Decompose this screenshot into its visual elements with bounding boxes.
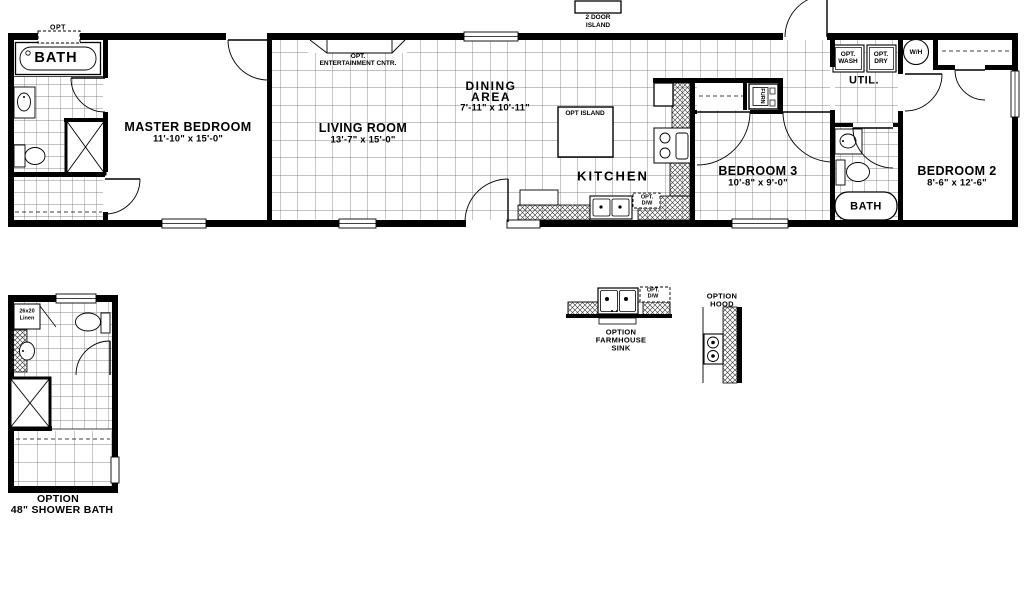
option-hood-drawing: [703, 307, 742, 383]
opt-window-label: OPT: [50, 25, 66, 32]
opt-dry-label-line2: DRY: [874, 59, 887, 66]
option-shower-bath-title-line2: 48" SHOWER BATH: [11, 505, 114, 516]
bedroom2-dims: 8'-6" x 12'-6": [927, 178, 987, 188]
utility-label: UTIL.: [849, 76, 879, 87]
hall-closets: [697, 83, 778, 110]
master-bath-label: BATH: [34, 51, 77, 66]
dining-area-name-line2: AREA: [471, 91, 511, 103]
bedroom2-name: BEDROOM 2: [917, 165, 996, 178]
floorplan-page: OPT BATH MASTER BEDROOM 11'-10" x 15'-0"…: [0, 0, 1024, 600]
island-ext-label-line1: 2 DOOR: [586, 15, 611, 22]
master-bedroom-dims: 11'-10" x 15'-0": [153, 134, 223, 144]
farmhouse-opt-dw-line2: D/W: [648, 294, 659, 300]
linen-label-line2: Linen: [20, 316, 35, 322]
living-room-name: LIVING ROOM: [319, 122, 407, 135]
kitchen-opt-dw-line2: D/W: [642, 201, 653, 207]
bedroom3-dims: 10'-8" x 9'-0": [728, 178, 788, 188]
living-room-dims: 13'-7" x 15'-0": [330, 135, 395, 145]
option-farmhouse-title-line3: SINK: [611, 344, 630, 352]
opt-island-label: OPT ISLAND: [565, 111, 604, 118]
kitchen-name: KITCHEN: [577, 170, 649, 183]
option-shower-bath-title-line1: OPTION: [37, 494, 79, 505]
island-ext-label-line2: ISLAND: [586, 23, 610, 30]
ent-cntr-label-line2: ENTERTAINMENT CNTR.: [320, 61, 397, 68]
furnace-label: FURN: [758, 88, 764, 103]
bath2-label: BATH: [850, 202, 882, 213]
opt-wash-label-line2: WASH: [838, 59, 858, 66]
linen-label-line1: 26x20: [19, 309, 34, 315]
bedroom3-name: BEDROOM 3: [718, 165, 797, 178]
option-hood-title-line2: HOOD: [710, 300, 734, 308]
living-alcove: [308, 40, 407, 53]
master-bedroom-name: MASTER BEDROOM: [124, 121, 251, 134]
dining-area-dims: 7'-11" x 10'-11": [460, 103, 530, 113]
water-heater-label: W/H: [910, 50, 923, 57]
